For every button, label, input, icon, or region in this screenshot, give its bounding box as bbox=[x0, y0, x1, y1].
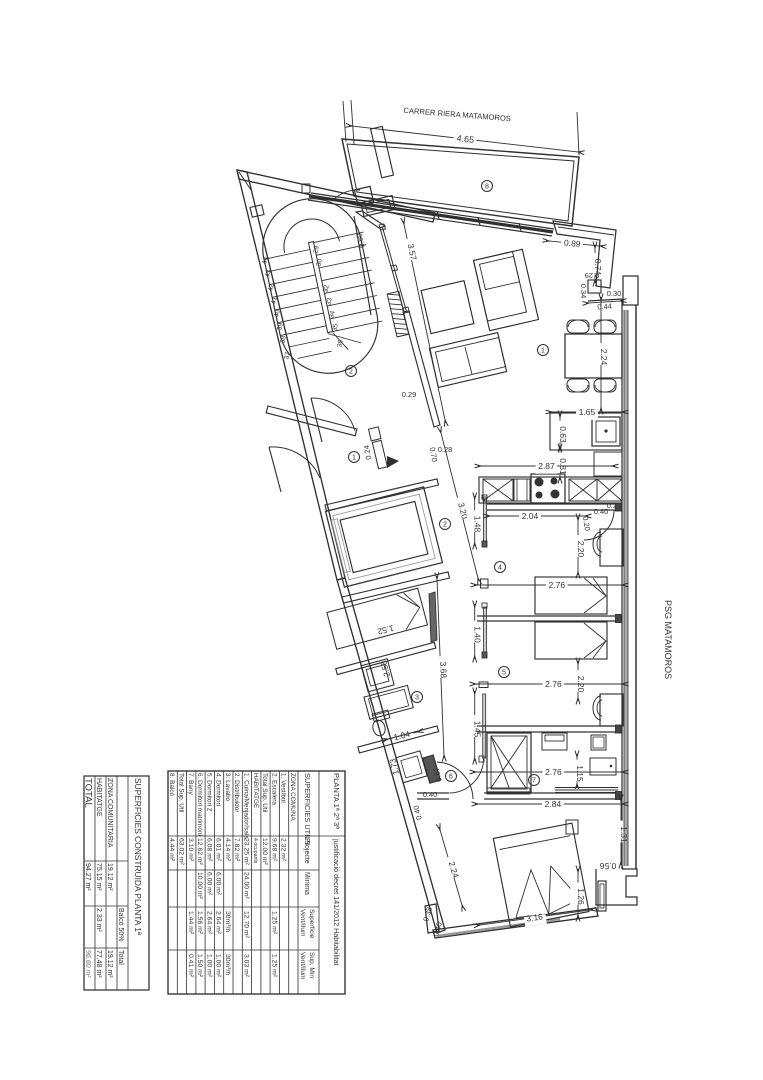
svg-text:Superficie: Superficie bbox=[308, 909, 315, 939]
svg-text:4.14 m²: 4.14 m² bbox=[224, 838, 231, 862]
svg-text:2. Escalera: 2. Escalera bbox=[270, 773, 277, 805]
svg-text:7.82 m²: 7.82 m² bbox=[233, 838, 240, 862]
svg-text:PLANTA 1ª 2ª 3ª: PLANTA 1ª 2ª 3ª bbox=[332, 773, 341, 829]
svg-text:1.31: 1.31 bbox=[619, 826, 629, 843]
svg-text:1.25 m²: 1.25 m² bbox=[270, 954, 277, 978]
svg-text:2.24: 2.24 bbox=[599, 349, 609, 366]
svg-text:4 ocupants: 4 ocupants bbox=[252, 838, 258, 864]
svg-text:6.00 m²: 6.00 m² bbox=[215, 872, 222, 896]
svg-text:3.68: 3.68 bbox=[438, 661, 449, 678]
svg-text:2.64 m²: 2.64 m² bbox=[205, 911, 212, 935]
svg-text:63.02 m²: 63.02 m² bbox=[178, 838, 185, 866]
svg-text:Vent/Ilum: Vent/Ilum bbox=[299, 952, 306, 980]
svg-text:4.65: 4.65 bbox=[456, 133, 475, 145]
svg-text:23.25 m²: 23.25 m² bbox=[243, 838, 250, 866]
svg-text:2.04: 2.04 bbox=[522, 511, 539, 521]
svg-text:Total: Total bbox=[117, 950, 124, 965]
svg-text:7: 7 bbox=[532, 777, 536, 784]
svg-text:Mínima: Mínima bbox=[303, 872, 310, 895]
svg-text:Vent/Ilum: Vent/Ilum bbox=[299, 909, 306, 937]
svg-text:1: 1 bbox=[541, 347, 545, 354]
svg-text:2.87: 2.87 bbox=[538, 461, 555, 471]
svg-text:1.65: 1.65 bbox=[579, 407, 596, 417]
svg-text:ZONA COMUNITARIA: ZONA COMUNITARIA bbox=[106, 778, 113, 848]
svg-text:0.41 m²: 0.41 m² bbox=[187, 954, 194, 978]
svg-text:2: 2 bbox=[349, 368, 353, 375]
svg-text:4: 4 bbox=[498, 564, 502, 571]
svg-text:Balcó 50%: Balcó 50% bbox=[117, 908, 124, 941]
svg-text:1.45: 1.45 bbox=[473, 721, 483, 738]
svg-text:8. Balcó: 8. Balcó bbox=[168, 773, 175, 797]
svg-text:1.26: 1.26 bbox=[576, 888, 586, 905]
svg-text:2.32 m²: 2.32 m² bbox=[280, 838, 287, 862]
svg-text:6: 6 bbox=[449, 773, 453, 780]
svg-text:2.84: 2.84 bbox=[545, 799, 562, 809]
svg-text:0.29: 0.29 bbox=[402, 390, 417, 399]
svg-text:5. Dormitori 2: 5. Dormitori 2 bbox=[205, 773, 212, 812]
svg-text:12.62 m²: 12.62 m² bbox=[196, 838, 203, 866]
svg-text:4.44 m²: 4.44 m² bbox=[168, 838, 175, 862]
svg-text:24.00 m²: 24.00 m² bbox=[243, 872, 250, 900]
svg-text:30m³/h: 30m³/h bbox=[224, 954, 231, 975]
svg-text:6.00 m²: 6.00 m² bbox=[205, 872, 212, 896]
svg-text:1. Vestíbul: 1. Vestíbul bbox=[280, 773, 287, 803]
svg-text:1.00 m²: 1.00 m² bbox=[215, 954, 222, 978]
svg-text:1.56 m²: 1.56 m² bbox=[196, 911, 203, 935]
svg-text:ZONA COMUNA: ZONA COMUNA bbox=[289, 773, 296, 821]
svg-text:4. Dormitori: 4. Dormitori bbox=[215, 773, 222, 806]
svg-text:0.81: 0.81 bbox=[558, 458, 568, 475]
svg-text:SUPERFICIES UTILS: SUPERFICIES UTILS bbox=[303, 773, 312, 845]
svg-text:2: 2 bbox=[443, 521, 447, 528]
svg-text:10.00 m²: 10.00 m² bbox=[196, 872, 203, 900]
svg-text:1.48: 1.48 bbox=[473, 516, 483, 533]
svg-text:75.15 m²: 75.15 m² bbox=[95, 863, 102, 891]
svg-text:1.00 m²: 1.00 m² bbox=[205, 954, 212, 978]
svg-text:5: 5 bbox=[502, 669, 506, 676]
svg-text:0.63: 0.63 bbox=[558, 426, 568, 443]
svg-text:3.03 m²: 3.03 m² bbox=[243, 954, 250, 978]
svg-text:6.01 m²: 6.01 m² bbox=[215, 838, 222, 862]
svg-text:6.08 m²: 6.08 m² bbox=[205, 838, 212, 862]
svg-text:HABITATGE: HABITATGE bbox=[95, 778, 102, 817]
svg-text:justificació decret 141/2012 H: justificació decret 141/2012 Habitabilit… bbox=[332, 838, 341, 966]
svg-text:7. Bany: 7. Bany bbox=[187, 773, 194, 795]
svg-text:1.44 m²: 1.44 m² bbox=[187, 911, 194, 935]
svg-text:0.44: 0.44 bbox=[597, 302, 612, 312]
svg-text:2.76: 2.76 bbox=[545, 679, 562, 689]
svg-text:9.68 m²: 9.68 m² bbox=[270, 838, 277, 862]
svg-text:3. Lavabo: 3. Lavabo bbox=[224, 773, 231, 802]
svg-text:2. Distribuidor: 2. Distribuidor bbox=[233, 773, 240, 813]
svg-text:HABITATGE: HABITATGE bbox=[252, 773, 259, 808]
svg-text:Total Sup. Util: Total Sup. Util bbox=[178, 773, 185, 812]
svg-text:PSG MATAMOROS: PSG MATAMOROS bbox=[663, 600, 673, 679]
svg-text:8: 8 bbox=[485, 183, 489, 190]
svg-text:2.76: 2.76 bbox=[545, 767, 562, 777]
svg-text:6. Dormitori matrimoni: 6. Dormitori matrimoni bbox=[196, 773, 203, 836]
svg-text:2.76: 2.76 bbox=[549, 580, 566, 590]
svg-text:77.48 m²: 77.48 m² bbox=[95, 950, 102, 978]
svg-text:1. Cuina/Menjador/sala: 1. Cuina/Menjador/sala bbox=[243, 773, 250, 839]
svg-text:30m³/h: 30m³/h bbox=[224, 911, 231, 932]
svg-text:Total Sup. Util: Total Sup. Util bbox=[261, 773, 268, 812]
svg-text:0.34: 0.34 bbox=[579, 284, 588, 299]
svg-text:1.50 m²: 1.50 m² bbox=[196, 954, 203, 978]
svg-text:12.00 m²: 12.00 m² bbox=[261, 838, 268, 866]
svg-text:3: 3 bbox=[415, 694, 419, 701]
svg-text:96.60 m²: 96.60 m² bbox=[84, 950, 91, 978]
svg-text:SUPERFICIES CONSTRUIDA PLANTA: SUPERFICIES CONSTRUIDA PLANTA 1ª bbox=[133, 778, 143, 936]
svg-text:94.27 m²: 94.27 m² bbox=[84, 863, 91, 891]
svg-text:0.29: 0.29 bbox=[585, 271, 600, 280]
svg-text:2.64 m²: 2.64 m² bbox=[215, 911, 222, 935]
svg-text:0.89: 0.89 bbox=[564, 237, 582, 249]
svg-text:0.56: 0.56 bbox=[599, 861, 616, 871]
svg-text:Projecte: Projecte bbox=[303, 838, 310, 864]
svg-text:1: 1 bbox=[352, 454, 356, 461]
svg-text:0.40: 0.40 bbox=[423, 790, 438, 799]
svg-text:3.10 m²: 3.10 m² bbox=[187, 838, 194, 862]
svg-text:1.40: 1.40 bbox=[473, 626, 483, 643]
svg-text:1.15: 1.15 bbox=[575, 765, 585, 782]
svg-text:1.25 m²: 1.25 m² bbox=[270, 911, 277, 935]
svg-text:TOTAL: TOTAL bbox=[83, 778, 94, 808]
svg-text:12.70 m²: 12.70 m² bbox=[243, 911, 250, 939]
svg-text:19.12 m²: 19.12 m² bbox=[106, 863, 113, 891]
svg-text:Sup. Min: Sup. Min bbox=[308, 952, 315, 978]
svg-text:2.20: 2.20 bbox=[576, 541, 586, 558]
svg-text:2.33 m²: 2.33 m² bbox=[95, 908, 102, 932]
svg-text:19.12 m²: 19.12 m² bbox=[106, 950, 113, 978]
svg-text:0.30: 0.30 bbox=[607, 289, 622, 298]
